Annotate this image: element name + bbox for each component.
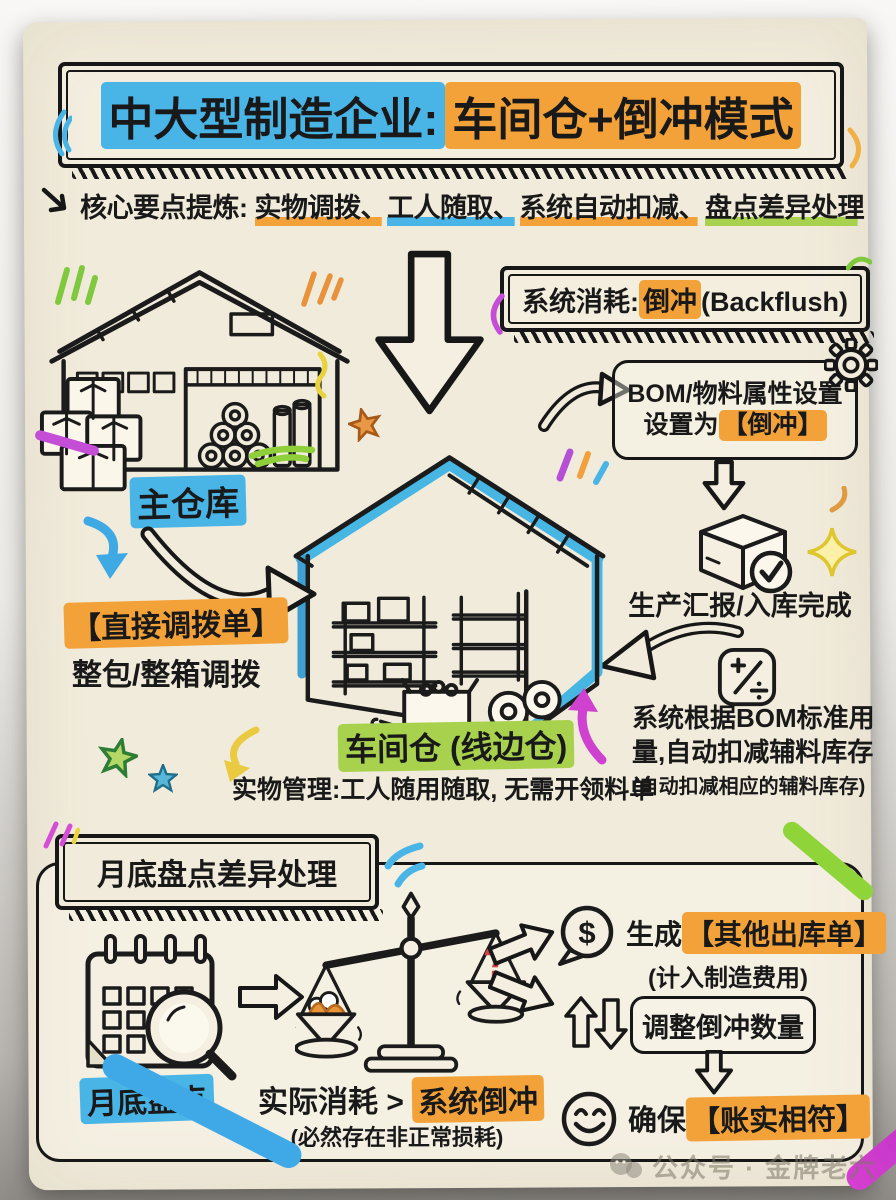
blue-spikes-icon bbox=[380, 838, 426, 892]
sparkle-icon bbox=[806, 526, 858, 578]
gear-icon bbox=[824, 338, 878, 392]
orange-spikes-icon bbox=[296, 266, 344, 312]
bom-line2: 设置为【倒冲】 bbox=[643, 410, 826, 441]
key-points-label: 核心要点提炼: bbox=[80, 193, 248, 223]
system-consume-suffix: (Backflush) bbox=[701, 287, 848, 317]
star-green-icon bbox=[98, 738, 138, 778]
bom-settings-box: BOM/物料属性设置 设置为【倒冲】 bbox=[612, 360, 858, 460]
ensure-prefix: 确保 bbox=[628, 1105, 686, 1137]
dollar-sign: $ bbox=[578, 915, 595, 950]
compare-note: (必然存在非正常损耗) bbox=[262, 1120, 532, 1152]
pink-spikes-icon bbox=[40, 818, 80, 852]
title-box: 中大型制造企业:车间仓+倒冲模式 bbox=[58, 62, 844, 168]
outbound-line: 生成【其他出库单】 bbox=[626, 912, 886, 954]
infographic-canvas: 中大型制造企业:车间仓+倒冲模式 核心要点提炼: 实物调拨、工人随取、系统自动扣… bbox=[0, 0, 896, 1200]
calculator-icon bbox=[716, 646, 778, 708]
transfer-tag: 【直接调拨单】 bbox=[63, 597, 288, 649]
yellow-squiggle-icon bbox=[312, 350, 332, 400]
key-points-line: 核心要点提炼: 实物调拨、工人随取、系统自动扣减、盘点差异处理 bbox=[80, 186, 864, 225]
subtitle-arrow-icon bbox=[40, 186, 74, 218]
green-scribble-icon bbox=[248, 440, 318, 468]
system-consume-text: 系统消耗:倒冲(Backflush) bbox=[522, 280, 848, 319]
main-warehouse-label: 主仓库 bbox=[129, 474, 246, 528]
yellow-arrow-icon bbox=[222, 726, 266, 784]
watermark-text: 公众号 · 金牌老六 bbox=[652, 1148, 877, 1185]
down-arrow-main bbox=[372, 250, 487, 415]
watermark: 公众号 · 金牌老六 bbox=[608, 1148, 877, 1185]
outbound-prefix: 生成 bbox=[626, 919, 682, 950]
transfer-desc: 整包/整箱调拨 bbox=[72, 650, 260, 694]
down-arrow-adjust bbox=[692, 1050, 736, 1096]
adjust-box: 调整倒冲数量 bbox=[630, 996, 816, 1054]
orange-crescent-icon bbox=[828, 486, 852, 514]
deduction-line1: 系统根据BOM标准用 bbox=[632, 702, 875, 736]
system-consume-prefix: 系统消耗: bbox=[522, 287, 639, 317]
wechat-icon bbox=[608, 1152, 644, 1182]
blue-arrow-icon bbox=[76, 515, 136, 583]
key-point-2: 工人随取、 bbox=[387, 193, 520, 227]
outbound-highlight: 【其他出库单】 bbox=[682, 912, 886, 954]
bom-line2-highlight: 【倒冲】 bbox=[719, 410, 827, 441]
tricolor-spikes-icon bbox=[552, 446, 612, 488]
key-point-3: 系统自动扣减、 bbox=[520, 193, 706, 227]
green-spikes-icon bbox=[50, 260, 102, 308]
magenta-arrow-icon bbox=[560, 688, 614, 766]
key-point-4: 盘点差异处理 bbox=[705, 193, 864, 227]
smiley-icon bbox=[560, 1090, 620, 1148]
star-blue-icon bbox=[148, 764, 178, 794]
deduction-note: (自动扣减相应的辅料库存) bbox=[632, 774, 875, 800]
workshop-label: 车间仓 (线边仓) bbox=[338, 720, 575, 772]
deduction-line2: 量,自动扣减辅料库存 bbox=[632, 736, 875, 770]
title-highlight-blue: 中大型制造企业: bbox=[101, 82, 445, 149]
green-curl-icon bbox=[846, 252, 872, 272]
updown-arrows-icon bbox=[564, 994, 628, 1052]
title-highlight-orange: 车间仓+倒冲模式 bbox=[445, 82, 800, 149]
page-title: 中大型制造企业:车间仓+倒冲模式 bbox=[101, 82, 800, 149]
compare-line: 实际消耗 > 系统倒冲 bbox=[258, 1076, 544, 1122]
ensure-line: 确保【账实相符】 bbox=[628, 1096, 870, 1140]
bom-line2-prefix: 设置为 bbox=[643, 411, 718, 439]
system-consume-highlight: 倒冲 bbox=[639, 280, 701, 319]
compare-highlight: 系统倒冲 bbox=[412, 1075, 545, 1123]
bom-line1: BOM/物料属性设置 bbox=[627, 379, 842, 410]
down-arrow-bom bbox=[700, 460, 748, 512]
workshop-desc: 实物管理:工人随用随取, 无需开领料单 bbox=[232, 770, 654, 806]
orange-curl-icon bbox=[846, 126, 868, 170]
system-consume-box: 系统消耗:倒冲(Backflush) bbox=[500, 266, 870, 332]
adjust-label: 调整倒冲数量 bbox=[642, 1006, 804, 1045]
ensure-highlight: 【账实相符】 bbox=[686, 1094, 871, 1141]
dollar-bubble-icon: $ bbox=[556, 904, 620, 968]
blue-curl-icon bbox=[44, 108, 72, 160]
outbound-note: (计入制造费用) bbox=[648, 958, 808, 993]
purple-curl-icon bbox=[484, 292, 506, 336]
deduction-text: 系统根据BOM标准用 量,自动扣减辅料库存 (自动扣减相应的辅料库存) bbox=[632, 702, 875, 800]
compare-prefix: 实际消耗 > bbox=[258, 1086, 412, 1119]
key-point-1: 实物调拨、 bbox=[255, 193, 388, 227]
